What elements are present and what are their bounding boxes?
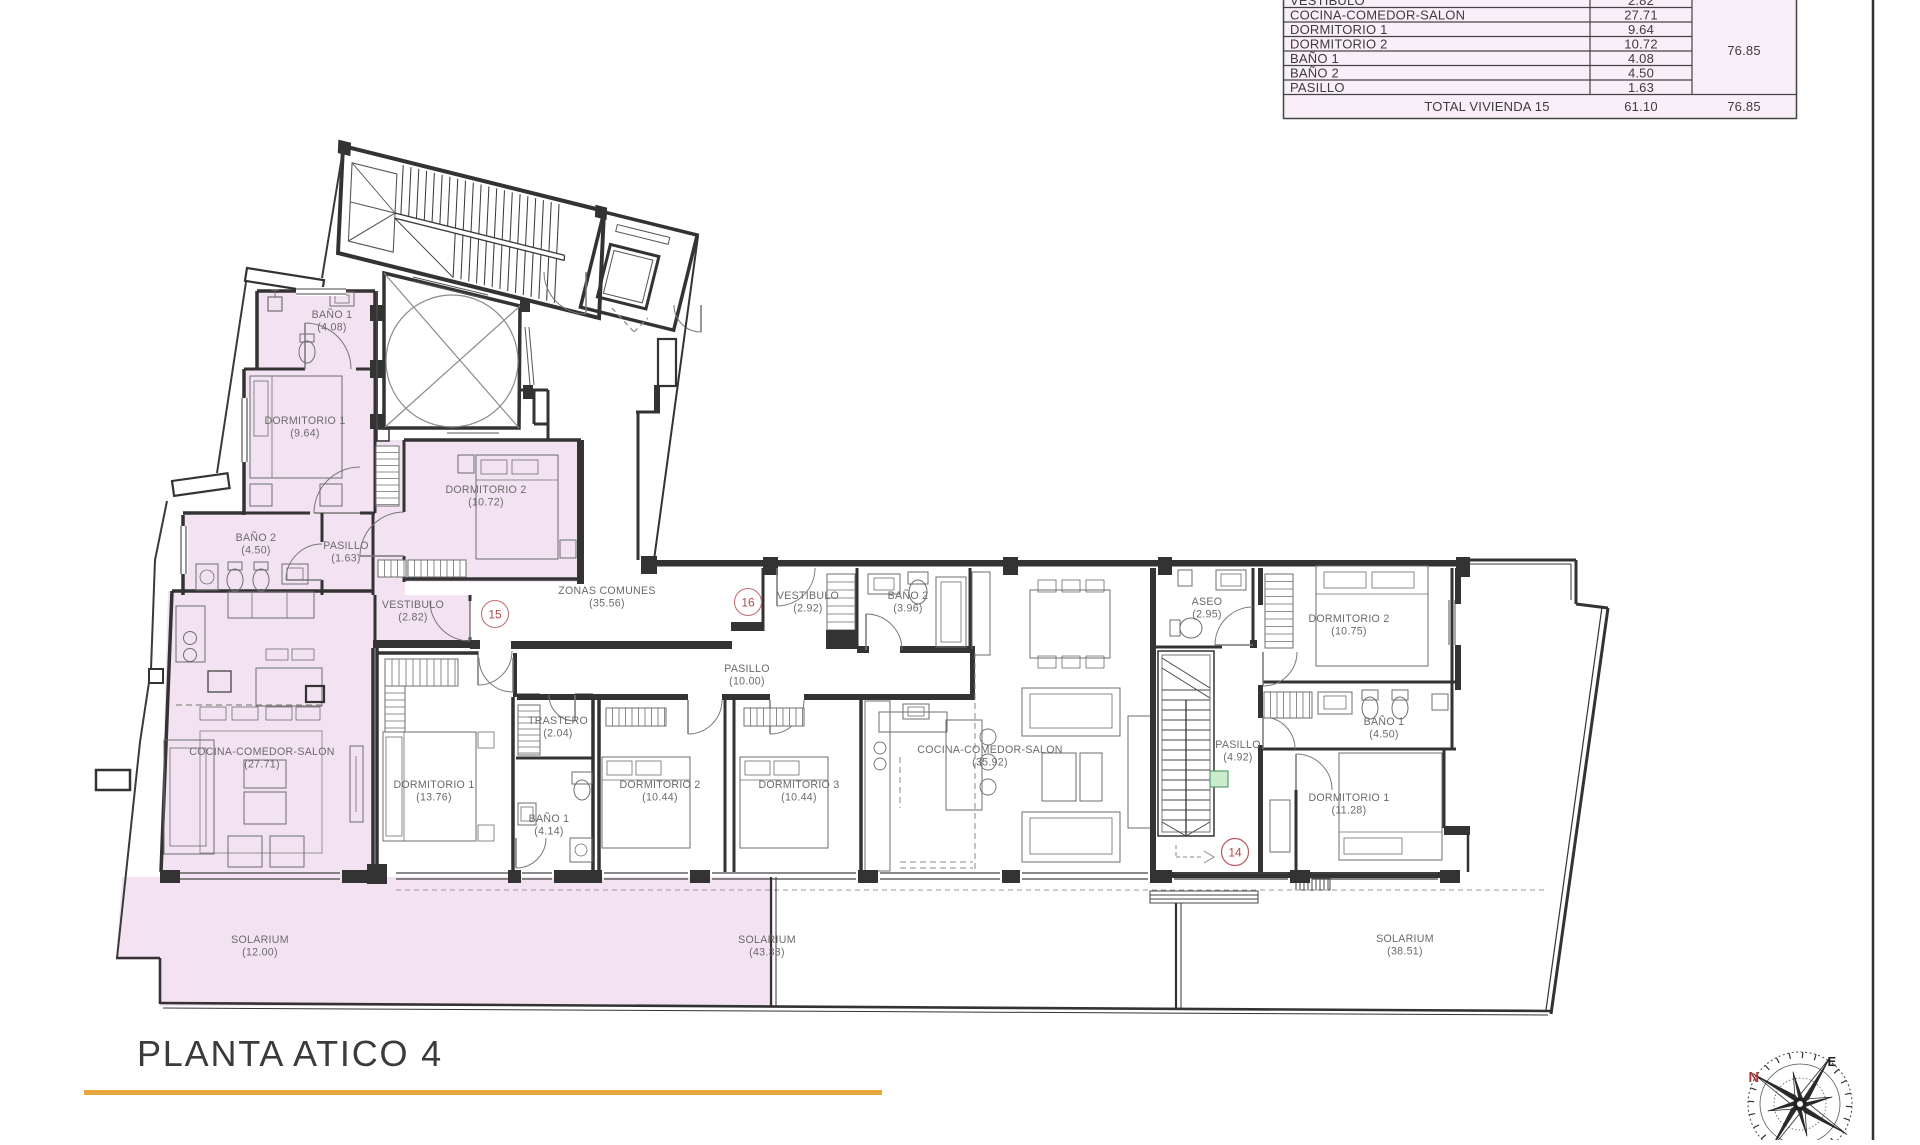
svg-text:PASILLO: PASILLO [1290, 80, 1345, 95]
svg-text:(4.08): (4.08) [317, 322, 346, 334]
svg-text:PASILLO: PASILLO [1215, 739, 1260, 751]
svg-text:BAÑO 2: BAÑO 2 [888, 589, 929, 602]
svg-text:76.85: 76.85 [1727, 99, 1761, 114]
svg-text:PLANTA ATICO 4: PLANTA ATICO 4 [137, 1033, 443, 1074]
svg-text:(4.14): (4.14) [534, 826, 563, 838]
svg-text:(35.92): (35.92) [972, 757, 1008, 769]
svg-text:(10.44): (10.44) [781, 792, 817, 804]
svg-text:DORMITORIO 2: DORMITORIO 2 [1290, 37, 1388, 52]
svg-text:(2.95): (2.95) [1192, 609, 1221, 621]
svg-text:SOLARIUM: SOLARIUM [1376, 933, 1434, 945]
svg-text:TOTAL VIVIENDA 15: TOTAL VIVIENDA 15 [1424, 99, 1549, 114]
svg-text:1.63: 1.63 [1628, 80, 1654, 95]
svg-text:COCINA-COMEDOR-SALON: COCINA-COMEDOR-SALON [189, 746, 335, 758]
svg-text:27.71: 27.71 [1624, 8, 1658, 23]
svg-text:(4.50): (4.50) [241, 545, 270, 557]
svg-text:4.08: 4.08 [1628, 51, 1654, 66]
svg-text:(10.75): (10.75) [1331, 626, 1367, 638]
svg-text:PASILLO: PASILLO [724, 663, 769, 675]
svg-text:(13.76): (13.76) [416, 792, 452, 804]
svg-text:(27.71): (27.71) [244, 759, 280, 771]
svg-text:BAÑO 1: BAÑO 1 [1290, 51, 1339, 66]
svg-text:(4.50): (4.50) [1369, 729, 1398, 741]
svg-text:E: E [1828, 1054, 1837, 1069]
svg-text:76.85: 76.85 [1727, 43, 1761, 58]
svg-text:BAÑO 1: BAÑO 1 [529, 812, 570, 825]
svg-text:COCINA-COMEDOR-SALON: COCINA-COMEDOR-SALON [917, 744, 1063, 756]
svg-text:(11.28): (11.28) [1332, 805, 1367, 817]
svg-text:(35.56): (35.56) [589, 598, 625, 610]
svg-text:ZONAS COMUNES: ZONAS COMUNES [558, 585, 656, 597]
svg-text:DORMITORIO 2: DORMITORIO 2 [445, 484, 526, 496]
svg-text:16: 16 [741, 596, 755, 610]
svg-text:61.10: 61.10 [1624, 99, 1658, 114]
svg-text:(10.72): (10.72) [468, 497, 504, 509]
svg-text:SOLARIUM: SOLARIUM [231, 934, 289, 946]
svg-text:DORMITORIO 1: DORMITORIO 1 [393, 779, 474, 791]
svg-text:VESTIBULO: VESTIBULO [382, 599, 444, 611]
svg-text:(9.64): (9.64) [290, 428, 319, 440]
svg-text:DORMITORIO 3: DORMITORIO 3 [758, 779, 839, 791]
svg-text:BAÑO 1: BAÑO 1 [312, 308, 353, 321]
svg-text:BAÑO 2: BAÑO 2 [1290, 66, 1339, 81]
svg-text:ASEO: ASEO [1192, 596, 1223, 608]
svg-text:DORMITORIO 2: DORMITORIO 2 [619, 779, 700, 791]
svg-text:(2.04): (2.04) [543, 728, 572, 740]
svg-text:14: 14 [1228, 846, 1242, 860]
svg-text:(43.33): (43.33) [749, 947, 785, 959]
svg-text:DORMITORIO 2: DORMITORIO 2 [1308, 613, 1389, 625]
svg-text:(2.82): (2.82) [398, 612, 427, 624]
svg-text:VESTIBULO: VESTIBULO [777, 590, 839, 602]
svg-text:PASILLO: PASILLO [323, 540, 368, 552]
svg-text:15: 15 [488, 608, 502, 622]
svg-text:DORMITORIO 1: DORMITORIO 1 [1290, 22, 1388, 37]
svg-text:(3.96): (3.96) [893, 603, 922, 615]
svg-text:SOLARIUM: SOLARIUM [738, 934, 796, 946]
svg-text:(2.92): (2.92) [793, 603, 822, 615]
svg-text:BAÑO 2: BAÑO 2 [236, 531, 277, 544]
svg-text:TRASTERO: TRASTERO [528, 715, 588, 727]
svg-text:4.50: 4.50 [1628, 66, 1654, 81]
svg-text:(4.92): (4.92) [1223, 752, 1252, 764]
svg-text:10.72: 10.72 [1624, 37, 1658, 52]
svg-text:COCINA-COMEDOR-SALON: COCINA-COMEDOR-SALON [1290, 8, 1465, 23]
svg-text:9.64: 9.64 [1628, 22, 1654, 37]
svg-text:(1.63): (1.63) [331, 553, 360, 565]
svg-text:(10.00): (10.00) [729, 676, 765, 688]
svg-text:(38.51): (38.51) [1387, 946, 1423, 958]
svg-text:DORMITORIO 1: DORMITORIO 1 [264, 415, 345, 427]
svg-text:DORMITORIO 1: DORMITORIO 1 [1308, 792, 1389, 804]
svg-text:BAÑO 1: BAÑO 1 [1364, 715, 1405, 728]
svg-text:N: N [1748, 1069, 1759, 1086]
svg-text:(12.00): (12.00) [242, 947, 278, 959]
svg-text:(10.44): (10.44) [642, 792, 678, 804]
